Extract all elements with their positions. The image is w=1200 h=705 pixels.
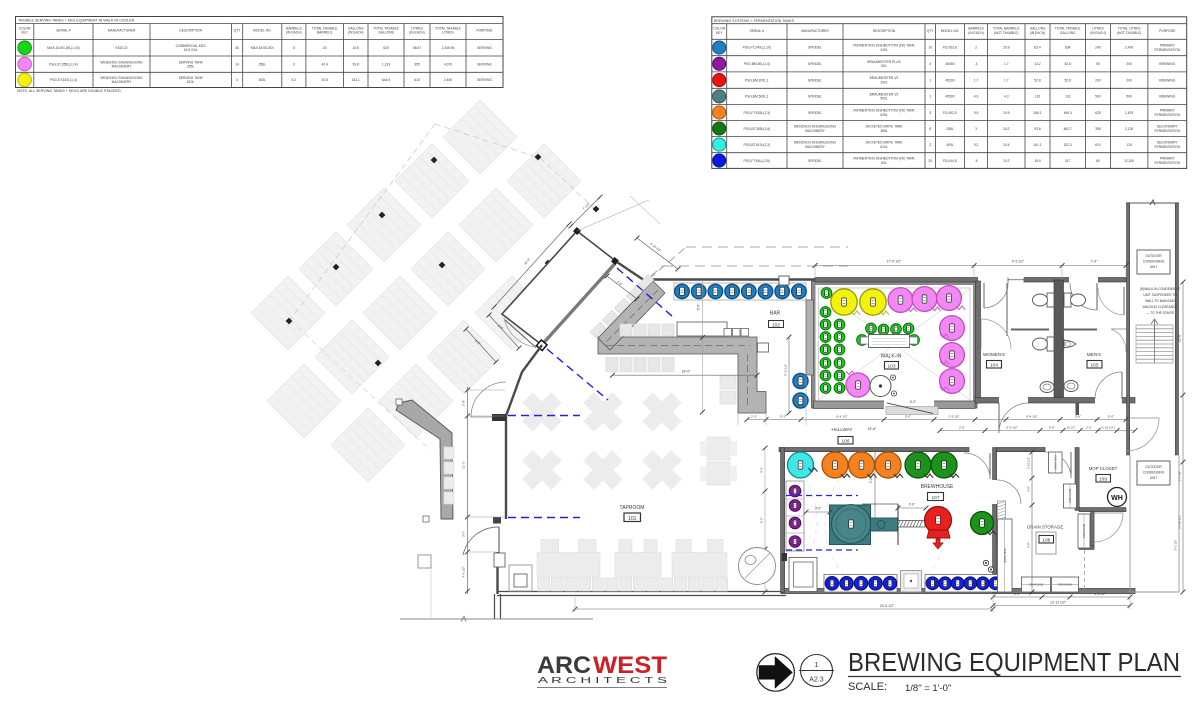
svg-text:1/8" = 1'-0": 1/8" = 1'-0" xyxy=(905,683,951,694)
svg-text:500: 500 xyxy=(1126,95,1132,99)
svg-text:NOTE: ALL SERVING TANKS + KEGS: NOTE: ALL SERVING TANKS + KEGS ARE DOUBL… xyxy=(17,89,122,93)
svg-text:2,346.96: 2,346.96 xyxy=(442,46,455,50)
svg-text:20.8: 20.8 xyxy=(321,78,328,82)
svg-text:SCALE:: SCALE: xyxy=(848,681,887,693)
svg-text:5'-11 1/2": 5'-11 1/2" xyxy=(784,364,788,376)
svg-text:610L: 610L xyxy=(187,80,195,84)
svg-text:10.2: 10.2 xyxy=(1003,159,1010,163)
svg-text:109: 109 xyxy=(1099,476,1107,482)
svg-text:6'-4 1/2": 6'-4 1/2" xyxy=(1026,415,1037,419)
svg-text:18.2: 18.2 xyxy=(1003,127,1010,131)
svg-text:QTY: QTY xyxy=(927,29,935,33)
svg-text:MACHINERY: MACHINERY xyxy=(112,64,133,68)
svg-text:15'-10 1/2": 15'-10 1/2" xyxy=(1178,515,1182,529)
svg-text:317: 317 xyxy=(1065,159,1071,163)
svg-text:3'-0": 3'-0" xyxy=(815,507,821,511)
svg-text:WALK-IN: WALK-IN xyxy=(881,354,902,360)
svg-text:108: 108 xyxy=(1042,537,1050,543)
svg-text:2,400: 2,400 xyxy=(1125,46,1133,50)
svg-text:3'-0": 3'-0" xyxy=(1049,426,1055,430)
svg-text:50: 50 xyxy=(1096,62,1100,66)
svg-text:WOMEN'S: WOMEN'S xyxy=(983,352,1005,357)
svg-text:23'-6 1/2": 23'-6 1/2" xyxy=(880,604,895,608)
svg-text:PSG,BM,200L,1: PSG,BM,200L,1 xyxy=(745,78,769,82)
svg-text:3: 3 xyxy=(293,62,295,66)
svg-text:FERMENTATION: FERMENTATION xyxy=(1155,145,1181,149)
svg-text:2: 2 xyxy=(975,46,977,50)
svg-text:GRAIN BINS: GRAIN BINS xyxy=(1083,523,1086,538)
svg-text:5.2: 5.2 xyxy=(292,78,297,82)
svg-text:2'-10 1/2": 2'-10 1/2" xyxy=(1027,457,1031,469)
svg-text:120: 120 xyxy=(1126,143,1132,147)
svg-text:BREWING: BREWING xyxy=(1159,62,1175,66)
svg-text:42.4: 42.4 xyxy=(321,62,328,66)
svg-text:UNIT: UNIT xyxy=(1150,476,1157,480)
svg-text:355: 355 xyxy=(414,62,420,66)
svg-text:258L: 258L xyxy=(259,62,267,66)
svg-text:SERIAL #: SERIAL # xyxy=(56,29,71,33)
svg-text:3: 3 xyxy=(975,127,977,131)
svg-text:SPEIDEL: SPEIDEL xyxy=(808,159,822,163)
svg-text:5'-0": 5'-0" xyxy=(1108,415,1114,419)
svg-text:6'-0": 6'-0" xyxy=(697,303,701,310)
svg-text:PSG,FT,625L(1,3): PSG,FT,625L(1,3) xyxy=(744,111,771,115)
svg-text:495.3: 495.3 xyxy=(1064,111,1072,115)
svg-text:CONDENSING: CONDENSING xyxy=(1143,471,1165,475)
svg-text:PSG,ST,610L(1,4): PSG,ST,610L(1,4) xyxy=(50,78,77,82)
svg-text:MANUFACTURER: MANUFACTURER xyxy=(108,29,136,33)
svg-text:KEY: KEY xyxy=(716,31,723,35)
svg-text:MILK15.5G,5DI: MILK15.5G,5DI xyxy=(251,46,274,50)
svg-text:3'-0": 3'-0" xyxy=(462,531,466,537)
svg-text:BREWHOUSE: BREWHOUSE xyxy=(921,484,954,490)
svg-text:HALLWAY: HALLWAY xyxy=(831,427,852,432)
svg-text:1: 1 xyxy=(929,95,931,99)
svg-text:405L: 405L xyxy=(946,143,954,147)
svg-text:625L: 625L xyxy=(880,113,888,117)
svg-text:15.5 GAL: 15.5 GAL xyxy=(184,48,198,52)
svg-text:SERVING: SERVING xyxy=(477,46,492,50)
svg-text:610: 610 xyxy=(414,78,420,82)
svg-text:5'-0 1/2": 5'-0 1/2" xyxy=(1006,426,1017,430)
svg-text:(IN EACH): (IN EACH) xyxy=(1090,31,1106,35)
svg-text:FERMENTATION: FERMENTATION xyxy=(1155,113,1181,117)
svg-text:562.7: 562.7 xyxy=(1064,127,1072,131)
svg-text:BREWING SYSTEMS + FERMENTATION: BREWING SYSTEMS + FERMENTATION TANKS xyxy=(714,19,795,23)
svg-text:13.2: 13.2 xyxy=(1034,62,1041,66)
svg-text:GRAIN BINS: GRAIN BINS xyxy=(1054,455,1057,470)
svg-text:1.7: 1.7 xyxy=(974,78,979,82)
svg-text:106: 106 xyxy=(841,438,849,444)
svg-text:200: 200 xyxy=(1126,62,1132,66)
svg-text:PSG,BT,355L(1,6): PSG,BT,355L(1,6) xyxy=(743,127,770,131)
svg-text:PSG,BM,50L(1,4): PSG,BM,50L(1,4) xyxy=(744,62,770,66)
svg-text:WALL TO MAINTAIN: WALL TO MAINTAIN xyxy=(1145,299,1175,303)
svg-text:3'-6": 3'-6" xyxy=(1075,415,1081,419)
svg-text:13'-11 1/2": 13'-11 1/2" xyxy=(1050,601,1067,605)
svg-text:9'-2 1/2": 9'-2 1/2" xyxy=(1174,540,1178,551)
svg-text:PURPOSE: PURPOSE xyxy=(476,29,493,33)
svg-text:MANUFACTURER: MANUFACTURER xyxy=(801,29,829,33)
svg-text:LITRES: LITRES xyxy=(442,31,454,35)
svg-text:BREWING: BREWING xyxy=(1159,95,1175,99)
svg-text:60: 60 xyxy=(1096,159,1100,163)
svg-text:105: 105 xyxy=(1090,362,1098,368)
svg-text:18'-0": 18'-0" xyxy=(682,370,691,374)
svg-text:FERMENTATION: FERMENTATION xyxy=(1155,161,1181,165)
svg-text:355: 355 xyxy=(1095,127,1101,131)
svg-text:15.9: 15.9 xyxy=(1034,159,1041,163)
svg-text:45050: 45050 xyxy=(945,62,954,66)
svg-text:— TO THE STAIRS: — TO THE STAIRS xyxy=(1146,311,1174,315)
svg-text:1.7: 1.7 xyxy=(1004,62,1009,66)
svg-text:240L: 240L xyxy=(880,48,888,52)
svg-text:WALKING CLEARANCE: WALKING CLEARANCE xyxy=(1143,305,1178,309)
svg-text:GRAIN BINS: GRAIN BINS xyxy=(1004,548,1007,563)
svg-text:4,970: 4,970 xyxy=(444,62,452,66)
svg-text:101: 101 xyxy=(628,516,637,522)
svg-text:610: 610 xyxy=(1095,143,1101,147)
svg-text:7'-0": 7'-0" xyxy=(1091,260,1099,264)
svg-text:CONDENSING: CONDENSING xyxy=(1143,260,1165,264)
svg-text:BREWING EQUIPMENT PLAN: BREWING EQUIPMENT PLAN xyxy=(848,647,1180,677)
svg-text:200L: 200L xyxy=(880,80,888,84)
svg-text:6'-7 1/2": 6'-7 1/2" xyxy=(1178,471,1182,482)
svg-text:GALLONS: GALLONS xyxy=(378,31,394,35)
svg-text:GRAIN BINS: GRAIN BINS xyxy=(1058,584,1073,587)
svg-text:258L: 258L xyxy=(946,127,954,131)
svg-text:.5: .5 xyxy=(292,46,295,50)
svg-text:10.4: 10.4 xyxy=(1003,143,1010,147)
svg-text:15.5: 15.5 xyxy=(353,46,360,50)
svg-text:6'-0": 6'-0" xyxy=(760,517,764,523)
svg-text:634: 634 xyxy=(1065,46,1071,50)
svg-text:12'-6": 12'-6" xyxy=(1178,333,1182,342)
svg-text:FD,053,S: FD,053,S xyxy=(943,46,958,50)
svg-text:.5: .5 xyxy=(975,159,978,163)
svg-text:15.9: 15.9 xyxy=(1003,111,1010,115)
svg-text:DESCRIPTION: DESCRIPTION xyxy=(873,29,896,33)
svg-text:8'-4 1/2": 8'-4 1/2" xyxy=(836,415,847,419)
svg-text:WEST: WEST xyxy=(593,652,667,679)
svg-text:TAXABLE SERVING TANKS + KEG EQ: TAXABLE SERVING TANKS + KEG EQUIPMENT IN… xyxy=(18,18,135,22)
svg-text:20.9: 20.9 xyxy=(1003,46,1010,50)
svg-text:SPEIDEL: SPEIDEL xyxy=(808,46,822,50)
svg-text:355L: 355L xyxy=(880,129,888,133)
svg-text:103: 103 xyxy=(887,364,895,370)
svg-text:PURPOSE: PURPOSE xyxy=(1159,29,1176,33)
svg-text:(NOT TAXABLE): (NOT TAXABLE) xyxy=(1117,31,1142,35)
svg-text:52.8: 52.8 xyxy=(1064,78,1071,82)
svg-text:QTY: QTY xyxy=(234,29,242,33)
svg-text:5'-0": 5'-0" xyxy=(905,415,911,419)
svg-text:500L: 500L xyxy=(880,97,888,101)
svg-text:(IN EACH): (IN EACH) xyxy=(1030,31,1046,35)
svg-text:5'-0 1/2": 5'-0 1/2" xyxy=(1094,592,1105,596)
svg-text:10: 10 xyxy=(928,46,932,50)
svg-text:A R C H I T E C T S: A R C H I T E C T S xyxy=(538,676,667,685)
svg-text:5.2: 5.2 xyxy=(974,143,979,147)
svg-text:9'-5 1/2": 9'-5 1/2" xyxy=(1012,260,1025,264)
svg-text:UNIT: UNIT xyxy=(1150,265,1157,269)
svg-text:GALLONS: GALLONS xyxy=(1060,31,1076,35)
svg-text:DESCRIPTION: DESCRIPTION xyxy=(179,29,202,33)
svg-text:355L: 355L xyxy=(187,64,195,68)
svg-text:SPEIDEL: SPEIDEL xyxy=(808,111,822,115)
svg-text:9'-0": 9'-0" xyxy=(1027,542,1031,548)
svg-text:644.6: 644.6 xyxy=(382,78,390,82)
svg-text:SERVING: SERVING xyxy=(477,62,492,66)
svg-text:SPEIDEL: SPEIDEL xyxy=(808,62,822,66)
svg-text:MACHINERY: MACHINERY xyxy=(805,129,826,133)
svg-text:2'-0": 2'-0" xyxy=(1086,426,1092,430)
svg-text:6: 6 xyxy=(929,127,931,131)
svg-text:ARC: ARC xyxy=(537,652,591,679)
svg-text:(IN EACH): (IN EACH) xyxy=(968,31,984,35)
svg-text:MACHINERY: MACHINERY xyxy=(805,145,826,149)
svg-text:5'-1": 5'-1" xyxy=(780,415,786,419)
svg-text:GRAIN BINS: GRAIN BINS xyxy=(1069,488,1072,503)
svg-text:52.8: 52.8 xyxy=(1034,78,1041,82)
svg-text:14: 14 xyxy=(235,62,239,66)
svg-text:1: 1 xyxy=(929,78,931,82)
svg-text:52.8: 52.8 xyxy=(1064,62,1071,66)
svg-text:4'-4 1/2": 4'-4 1/2" xyxy=(462,566,466,577)
svg-text:322.3: 322.3 xyxy=(1064,143,1072,147)
svg-text:4: 4 xyxy=(929,62,931,66)
svg-text:2,440: 2,440 xyxy=(444,78,452,82)
svg-text:MODEL NO.: MODEL NO. xyxy=(941,29,959,33)
svg-text:MOP CLOSET: MOP CLOSET xyxy=(1089,466,1118,471)
svg-text:17'-5 1/2": 17'-5 1/2" xyxy=(887,260,902,264)
svg-text:3'-0": 3'-0" xyxy=(869,477,873,483)
svg-text:104: 104 xyxy=(990,362,998,368)
svg-text:MACHINERY: MACHINERY xyxy=(112,80,133,84)
svg-text:63.4: 63.4 xyxy=(1034,46,1041,50)
svg-text:2'-5 1/2": 2'-5 1/2" xyxy=(948,415,959,419)
svg-text:PSG,FT,240L(1,10): PSG,FT,240L(1,10) xyxy=(743,46,771,50)
svg-text:PSG,BT,610L(1,2): PSG,BT,610L(1,2) xyxy=(743,143,770,147)
svg-text:SPEIDEL: SPEIDEL xyxy=(808,95,822,99)
svg-text:PSG,BM,500L,1: PSG,BM,500L,1 xyxy=(745,95,769,99)
svg-text:BREWING: BREWING xyxy=(1159,78,1175,82)
svg-text:TAPROOM: TAPROOM xyxy=(620,505,645,511)
svg-text:3'-0": 3'-0" xyxy=(1027,486,1031,492)
svg-text:405L: 405L xyxy=(259,78,267,82)
svg-text:58.67: 58.67 xyxy=(413,46,421,50)
svg-text:200: 200 xyxy=(1126,78,1132,82)
svg-text:SERVING: SERVING xyxy=(477,78,492,82)
svg-text:15'-6": 15'-6" xyxy=(868,427,878,431)
svg-text:165.1: 165.1 xyxy=(1033,111,1041,115)
svg-text:45500: 45500 xyxy=(945,95,954,99)
svg-text:620: 620 xyxy=(383,46,389,50)
svg-text:4.3: 4.3 xyxy=(1004,95,1009,99)
svg-text:10 1/2": 10 1/2" xyxy=(1067,426,1076,430)
svg-text:240: 240 xyxy=(1095,46,1101,50)
svg-text:4: 4 xyxy=(236,78,238,82)
svg-text:2'-8": 2'-8" xyxy=(462,400,466,406)
svg-text:50L: 50L xyxy=(881,64,887,68)
svg-text:8'-1": 8'-1" xyxy=(1014,592,1020,596)
svg-text:PSG,ST,355L(1,14): PSG,ST,355L(1,14) xyxy=(49,62,78,66)
svg-text:11'-0": 11'-0" xyxy=(462,461,466,469)
svg-text:500: 500 xyxy=(1095,95,1101,99)
svg-text:FERMENTATION: FERMENTATION xyxy=(1155,129,1181,133)
svg-text:4'-0": 4'-0" xyxy=(760,467,764,473)
svg-text:200: 200 xyxy=(1095,78,1101,82)
svg-text:1.7: 1.7 xyxy=(1004,78,1009,82)
svg-text:3: 3 xyxy=(929,111,931,115)
svg-text:12,200: 12,200 xyxy=(1124,159,1134,163)
svg-text:.4: .4 xyxy=(975,62,978,66)
svg-text:PSG,FT,60L(1,20): PSG,FT,60L(1,20) xyxy=(744,159,771,163)
svg-text:2'-1": 2'-1" xyxy=(751,415,757,419)
svg-text:GRAIN BINS: GRAIN BINS xyxy=(1029,584,1044,587)
svg-text:20: 20 xyxy=(323,46,327,50)
svg-text:4.3: 4.3 xyxy=(974,95,979,99)
svg-text:UNIT SUSPENDED TO: UNIT SUSPENDED TO xyxy=(1143,293,1177,297)
svg-text:161.1: 161.1 xyxy=(352,78,360,82)
svg-text:60L: 60L xyxy=(881,161,887,165)
svg-text:93.8: 93.8 xyxy=(353,62,360,66)
svg-text:OUTDOOR: OUTDOOR xyxy=(1145,465,1162,469)
svg-text:6'-0": 6'-0" xyxy=(910,400,916,404)
svg-text:SPEIDEL: SPEIDEL xyxy=(808,78,822,82)
svg-text:MEN'S: MEN'S xyxy=(1087,352,1101,357)
svg-text:(IN EACH): (IN EACH) xyxy=(286,31,302,35)
svg-text:(NOT TAXABLE): (NOT TAXABLE) xyxy=(994,31,1019,35)
svg-text:(IN EACH): (IN EACH) xyxy=(348,31,364,35)
svg-text:1: 1 xyxy=(815,662,819,669)
svg-text:MILK,15.5G,20L(1,40): MILK,15.5G,20L(1,40) xyxy=(47,46,80,50)
svg-text:132: 132 xyxy=(1065,95,1071,99)
svg-text:2: 2 xyxy=(929,143,931,147)
svg-text:610L: 610L xyxy=(880,145,888,149)
svg-text:93.8: 93.8 xyxy=(1034,127,1041,131)
svg-text:1,875: 1,875 xyxy=(1125,111,1133,115)
svg-text:MODEL NO.: MODEL NO. xyxy=(253,29,271,33)
svg-text:132: 132 xyxy=(1035,95,1041,99)
svg-text:(IN EACH): (IN EACH) xyxy=(409,31,425,35)
svg-text:FERMENTATION: FERMENTATION xyxy=(1155,48,1181,52)
svg-text:161.1: 161.1 xyxy=(1033,143,1041,147)
svg-text:BAR: BAR xyxy=(770,311,781,317)
svg-text:45200: 45200 xyxy=(945,78,954,82)
svg-text:107: 107 xyxy=(931,495,939,501)
svg-text:2'-0": 2'-0" xyxy=(909,503,917,507)
svg-text:WH: WH xyxy=(1111,495,1123,502)
svg-text:(1'-10 1/2"): (1'-10 1/2") xyxy=(1101,426,1115,430)
svg-text:625: 625 xyxy=(1095,111,1101,115)
svg-text:KEY: KEY xyxy=(21,31,28,35)
svg-text:(B)WALK-IN CONDENSING: (B)WALK-IN CONDENSING xyxy=(1140,287,1180,291)
svg-text:SERIAL #: SERIAL # xyxy=(750,29,765,33)
svg-text:KEGCO: KEGCO xyxy=(116,46,128,50)
svg-text:OUTDOOR: OUTDOOR xyxy=(1145,254,1162,258)
svg-text:20: 20 xyxy=(928,159,932,163)
svg-text:BARRELS: BARRELS xyxy=(317,31,333,35)
svg-text:102: 102 xyxy=(772,322,780,328)
svg-text:FD,062,S: FD,062,S xyxy=(943,111,958,115)
svg-text:FD,044,S: FD,044,S xyxy=(943,159,958,163)
svg-text:3'-0": 3'-0" xyxy=(959,426,965,430)
svg-text:40: 40 xyxy=(235,46,239,50)
svg-text:1,313: 1,313 xyxy=(382,62,390,66)
svg-text:5.5: 5.5 xyxy=(974,111,979,115)
svg-text:A2.3: A2.3 xyxy=(809,677,824,684)
svg-text:2,130: 2,130 xyxy=(1125,127,1133,131)
